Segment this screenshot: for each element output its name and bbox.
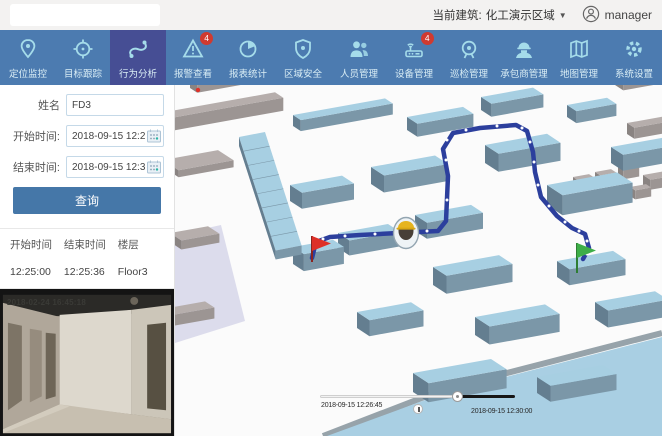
playback-timeline[interactable] (320, 395, 515, 398)
nav-item-behavior-analysis[interactable]: 行为分析 (110, 30, 165, 85)
shield-icon (290, 36, 316, 62)
camera-feed-panel: 2018-02-24 16:45:18 (0, 288, 174, 436)
topbar: 当前建筑: 化工演示区域 ▼ manager (0, 0, 662, 30)
start-time-label: 开始时间: (10, 128, 66, 144)
cell-start-time: 12:25:00 (10, 266, 64, 278)
timeline-handle[interactable] (452, 391, 463, 402)
col-header-start: 开始时间 (10, 237, 64, 252)
sidebar: 姓名 开始时间: (0, 85, 175, 436)
logo-placeholder (10, 4, 160, 26)
pie-chart-icon (235, 36, 261, 62)
username: manager (605, 8, 652, 22)
alarm-count-badge: 4 (200, 32, 213, 45)
query-button[interactable]: 查询 (13, 187, 161, 214)
playhead-marker[interactable] (413, 404, 423, 414)
end-time-label: 结束时间: (10, 159, 66, 175)
person-marker[interactable] (394, 218, 419, 249)
nav-item-inspection-mgmt[interactable]: 巡检管理 (441, 30, 496, 85)
nav-item-map-mgmt[interactable]: 地图管理 (552, 30, 607, 85)
alert-dot (196, 88, 200, 92)
nav-item-report-stats[interactable]: 报表统计 (221, 30, 276, 85)
calendar-icon[interactable] (146, 159, 162, 175)
crosshair-icon (70, 36, 96, 62)
query-form: 姓名 开始时间: (0, 85, 174, 228)
user-menu[interactable]: manager (582, 5, 652, 26)
map-3d-view[interactable]: 2018-09-15 12:26:45 2018-09-15 12:30:00 (175, 85, 662, 436)
nav-item-personnel-mgmt[interactable]: 人员管理 (331, 30, 386, 85)
results-table: 开始时间 结束时间 楼层 12:25:00 12:25:36 Floor3 (0, 229, 174, 288)
router-icon: 4 (401, 36, 427, 62)
worker-helmet-icon (511, 36, 537, 62)
main-nav: 定位监控 目标跟踪 行为分析 (0, 30, 662, 85)
nav-item-device-mgmt[interactable]: 4 设备管理 (386, 30, 441, 85)
name-input[interactable] (66, 94, 164, 116)
cell-floor: Floor3 (118, 266, 164, 278)
nav-item-alarm-view[interactable]: 4 报警查看 (166, 30, 221, 85)
people-icon (346, 36, 372, 62)
user-avatar-icon (582, 5, 600, 26)
timeline-end-time: 2018-09-15 12:30:00 (471, 408, 532, 415)
behavior-path-icon (125, 36, 151, 62)
calendar-icon[interactable] (146, 128, 162, 144)
video-timestamp: 2018-02-24 16:45:18 (7, 298, 86, 307)
timeline-remaining[interactable] (458, 395, 515, 398)
map-folded-icon (566, 36, 592, 62)
nav-item-system-settings[interactable]: 系统设置 (607, 30, 662, 85)
device-alert-badge: 4 (421, 32, 434, 45)
col-header-end: 结束时间 (64, 237, 118, 252)
behavior-analysis-page: 当前建筑: 化工演示区域 ▼ manager (0, 0, 662, 436)
chevron-down-icon: ▼ (559, 11, 567, 20)
gear-icon (621, 36, 647, 62)
current-building-value: 化工演示区域 (486, 7, 555, 23)
col-header-floor: 楼层 (118, 237, 164, 252)
nav-item-target-tracking[interactable]: 目标跟踪 (55, 30, 110, 85)
current-building-dropdown[interactable]: 当前建筑: 化工演示区域 ▼ (433, 7, 567, 23)
name-label: 姓名 (10, 97, 66, 113)
timeline-elapsed[interactable] (320, 395, 458, 398)
location-pin-icon (15, 36, 41, 62)
nav-item-area-security[interactable]: 区域安全 (276, 30, 331, 85)
current-building-label: 当前建筑: (433, 7, 482, 23)
alarm-triangle-icon: 4 (180, 36, 206, 62)
nav-item-location-monitor[interactable]: 定位监控 (0, 30, 55, 85)
beacon-icon (456, 36, 482, 62)
nav-item-contractor-mgmt[interactable]: 承包商管理 (497, 30, 552, 85)
timeline-current-time: 2018-09-15 12:26:45 (321, 402, 382, 409)
cell-end-time: 12:25:36 (64, 266, 118, 278)
camera-feed-image (0, 289, 174, 436)
